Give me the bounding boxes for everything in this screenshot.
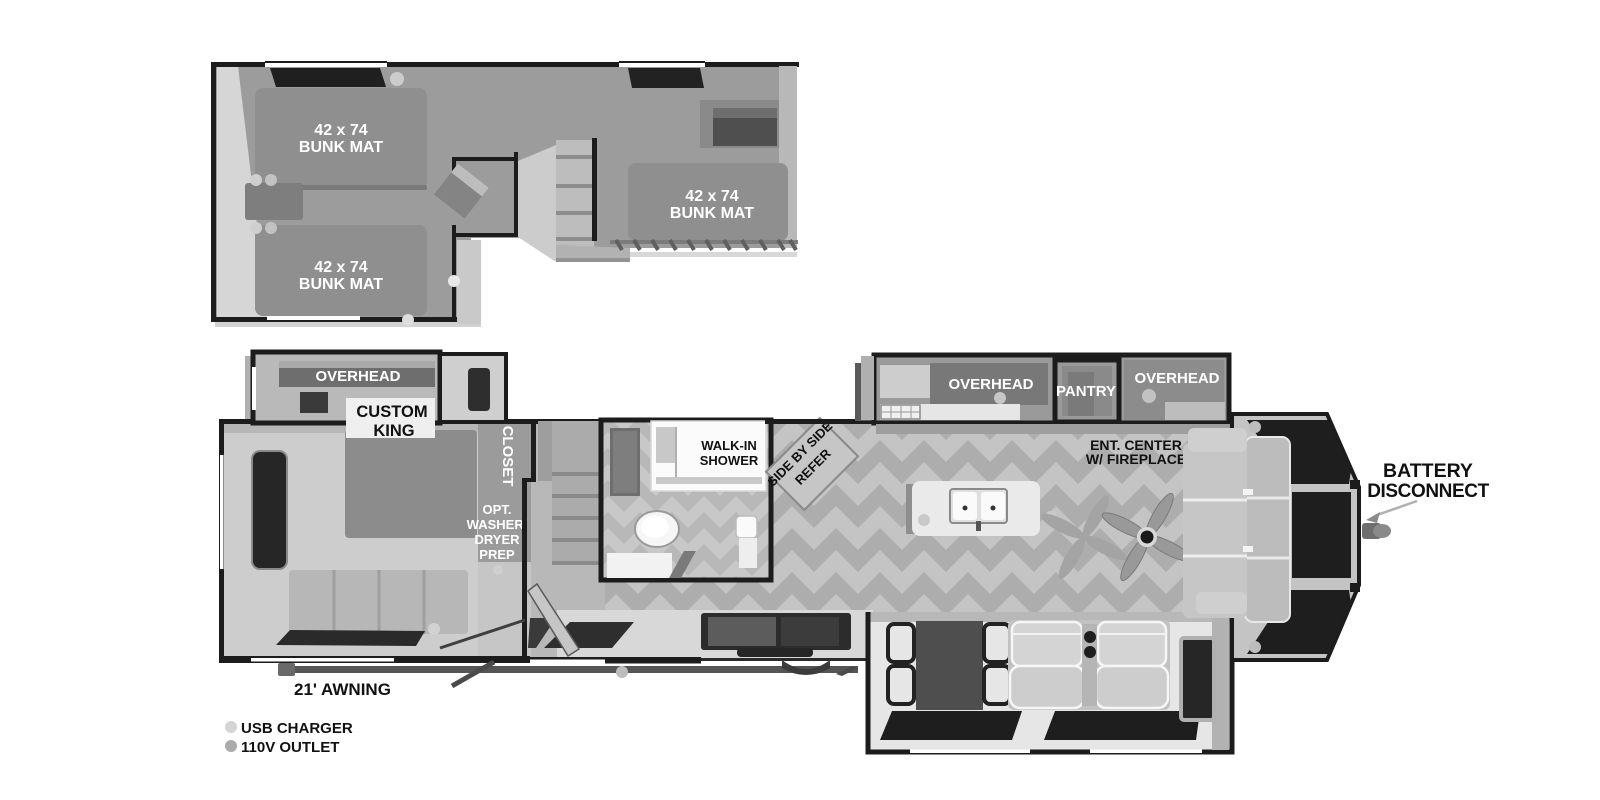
svg-text:DISCONNECT: DISCONNECT	[1367, 481, 1489, 502]
svg-text:OVERHEAD: OVERHEAD	[315, 368, 400, 385]
svg-text:21' AWNING: 21' AWNING	[294, 680, 391, 699]
svg-text:KING: KING	[373, 422, 414, 440]
svg-text:42 x 74: 42 x 74	[314, 122, 367, 139]
svg-text:OVERHEAD: OVERHEAD	[1134, 370, 1219, 387]
svg-text:DRYER: DRYER	[474, 532, 520, 547]
svg-text:BATTERY: BATTERY	[1383, 460, 1473, 482]
svg-text:PREP: PREP	[479, 547, 515, 562]
svg-text:SHOWER: SHOWER	[700, 453, 759, 468]
svg-text:BUNK MAT: BUNK MAT	[299, 276, 383, 293]
svg-text:USB CHARGER: USB CHARGER	[241, 720, 353, 737]
svg-text:BUNK MAT: BUNK MAT	[299, 139, 383, 156]
svg-text:OVERHEAD: OVERHEAD	[948, 376, 1033, 393]
svg-text:W/ FIREPLACE: W/ FIREPLACE	[1086, 451, 1186, 467]
svg-text:WASHER/: WASHER/	[467, 517, 528, 532]
svg-text:OPT.: OPT.	[483, 502, 512, 517]
svg-text:CUSTOM: CUSTOM	[356, 403, 427, 421]
svg-text:PANTRY: PANTRY	[1056, 383, 1116, 400]
svg-text:42 x 74: 42 x 74	[314, 259, 367, 276]
svg-text:WALK-IN: WALK-IN	[701, 438, 757, 453]
svg-text:CLOSET: CLOSET	[499, 426, 516, 487]
svg-text:42 x 74: 42 x 74	[685, 188, 738, 205]
svg-text:110V OUTLET: 110V OUTLET	[241, 739, 339, 756]
svg-text:BUNK MAT: BUNK MAT	[670, 205, 754, 222]
